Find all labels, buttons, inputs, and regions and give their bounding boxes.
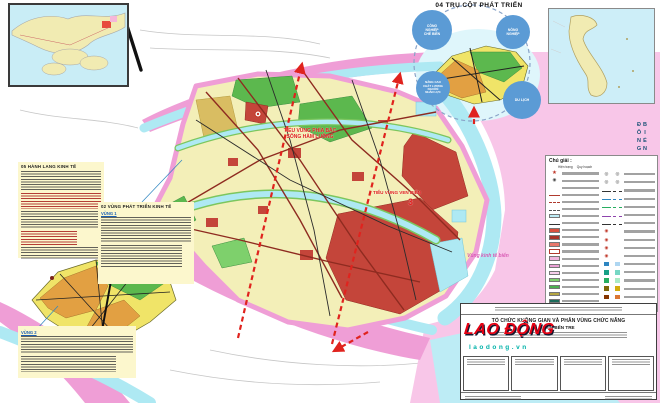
legend-row bbox=[549, 213, 599, 220]
legend-row bbox=[602, 293, 655, 301]
zone1-text2 bbox=[101, 245, 182, 267]
zones-title: 02 VÙNG PHÁT TRIỂN KINH TẾ bbox=[101, 204, 191, 209]
corridors-text-red2 bbox=[21, 231, 77, 245]
legend-row bbox=[549, 248, 599, 255]
pillar-tourism: DU LỊCH bbox=[503, 81, 541, 119]
legend-col-existing: Hiện trạng bbox=[558, 165, 573, 169]
zone2-label: VÙNG 2 bbox=[21, 330, 133, 335]
signature-box-4 bbox=[608, 356, 654, 391]
legend-row bbox=[602, 260, 655, 268]
legend-row bbox=[549, 205, 599, 212]
panel-economic-corridors: 05 HÀNH LANG KINH TẾ bbox=[18, 162, 104, 258]
legend-left-rows: ★◉ bbox=[549, 170, 599, 305]
legend-row: ◉ bbox=[549, 177, 599, 184]
legend-panel: Chú giải : Hiện trạng Quy hoạch ★◉ ◎◎◎◎◉… bbox=[545, 155, 658, 312]
label-subregion-north: TIỂU VÙNG PHÍA BẮC SÔNG HÀM LUÔNG bbox=[260, 128, 360, 140]
corridors-title: 05 HÀNH LANG KINH TẾ bbox=[21, 164, 101, 169]
legend-row bbox=[602, 203, 655, 211]
legend-row bbox=[602, 219, 655, 227]
legend-row bbox=[549, 198, 599, 205]
laodong-watermark-logo: LAO ĐỘNG bbox=[463, 321, 555, 339]
legend-row bbox=[549, 234, 599, 241]
legend-row bbox=[549, 241, 599, 248]
legend-row bbox=[549, 276, 599, 283]
pillar-agriculture: NÔNG NGHIỆP bbox=[496, 15, 530, 49]
legend-row bbox=[549, 255, 599, 262]
corridors-text-red bbox=[21, 193, 101, 209]
legend-row bbox=[549, 220, 599, 227]
label-subregion-coastal: TIỂU VÙNG VEN BIỂN bbox=[352, 190, 442, 195]
inset-vietnam-map bbox=[548, 8, 655, 104]
legend-row bbox=[602, 276, 655, 284]
decision-note-text bbox=[495, 307, 622, 311]
zone2-text bbox=[21, 336, 133, 354]
inset-regional-map bbox=[8, 3, 129, 87]
legend-col-planned: Quy hoạch bbox=[577, 165, 592, 169]
legend-row bbox=[549, 262, 599, 269]
legend-row: ★ bbox=[549, 170, 599, 177]
corridors-text3 bbox=[21, 247, 101, 259]
legend-row: ◉ bbox=[602, 227, 655, 235]
label-subregion-coastal-number: 3 bbox=[408, 197, 413, 207]
legend-right-rows: ◎◎◎◎◉◉◉◉ bbox=[602, 170, 655, 305]
signature-box-3 bbox=[560, 356, 606, 391]
panel-development-zones: 02 VÙNG PHÁT TRIỂN KINH TẾ VÙNG 1 bbox=[98, 202, 194, 284]
zone2-text2 bbox=[21, 356, 116, 372]
legend-row bbox=[602, 211, 655, 219]
signature-box-1 bbox=[463, 356, 509, 391]
legend-row bbox=[549, 284, 599, 291]
legend-row bbox=[602, 186, 655, 194]
legend-row: ◎◎ bbox=[602, 178, 655, 186]
planning-map-page: 04 TRỤ CỘT PHÁT TRIỂN CÔNG NGHIỆP CHẾ BI… bbox=[0, 0, 660, 403]
legend-row: ◎◎ bbox=[602, 170, 655, 178]
legend-row: ◉ bbox=[602, 244, 655, 252]
title-block-header bbox=[461, 304, 656, 315]
legend-row: ◉ bbox=[602, 252, 655, 260]
pillar-human-resources: NÂNG CAO CHẤT LƯỢNG NGUỒN NHÂN LỰC bbox=[416, 71, 450, 105]
legend-row bbox=[549, 269, 599, 276]
title-block: TỔ CHỨC KHÔNG GIAN VÀ PHÂN VÙNG CHỨC NĂN… bbox=[460, 303, 657, 400]
diagram-title: 04 TRỤ CỘT PHÁT TRIỂN bbox=[414, 2, 544, 9]
title-block-main: TỔ CHỨC KHÔNG GIAN VÀ PHÂN VÙNG CHỨC NĂN… bbox=[461, 315, 656, 355]
legend-row bbox=[602, 195, 655, 203]
zone1-label: VÙNG 1 bbox=[101, 211, 191, 216]
legend-title: Chú giải : bbox=[549, 158, 655, 164]
label-marine-zone: Vùng kinh tế biển bbox=[448, 253, 528, 259]
corridors-text bbox=[21, 171, 101, 191]
capital-marker bbox=[255, 111, 261, 117]
legend-row bbox=[602, 268, 655, 276]
legend-row bbox=[549, 184, 599, 191]
laodong-domain: laodong.vn bbox=[469, 344, 529, 351]
title-block-footer bbox=[461, 392, 656, 402]
legend-row bbox=[602, 285, 655, 293]
legend-row: ◉ bbox=[602, 236, 655, 244]
legend-row bbox=[549, 291, 599, 298]
signature-box-2 bbox=[511, 356, 557, 391]
panel-zone2: VÙNG 2 bbox=[18, 326, 136, 378]
pillar-processing-industry: CÔNG NGHIỆP CHẾ BIẾN bbox=[412, 10, 452, 50]
legend-row bbox=[549, 227, 599, 234]
legend-row bbox=[549, 191, 599, 198]
zone1-text bbox=[101, 217, 191, 243]
signature-row bbox=[461, 355, 656, 392]
corridors-text2 bbox=[21, 211, 101, 229]
